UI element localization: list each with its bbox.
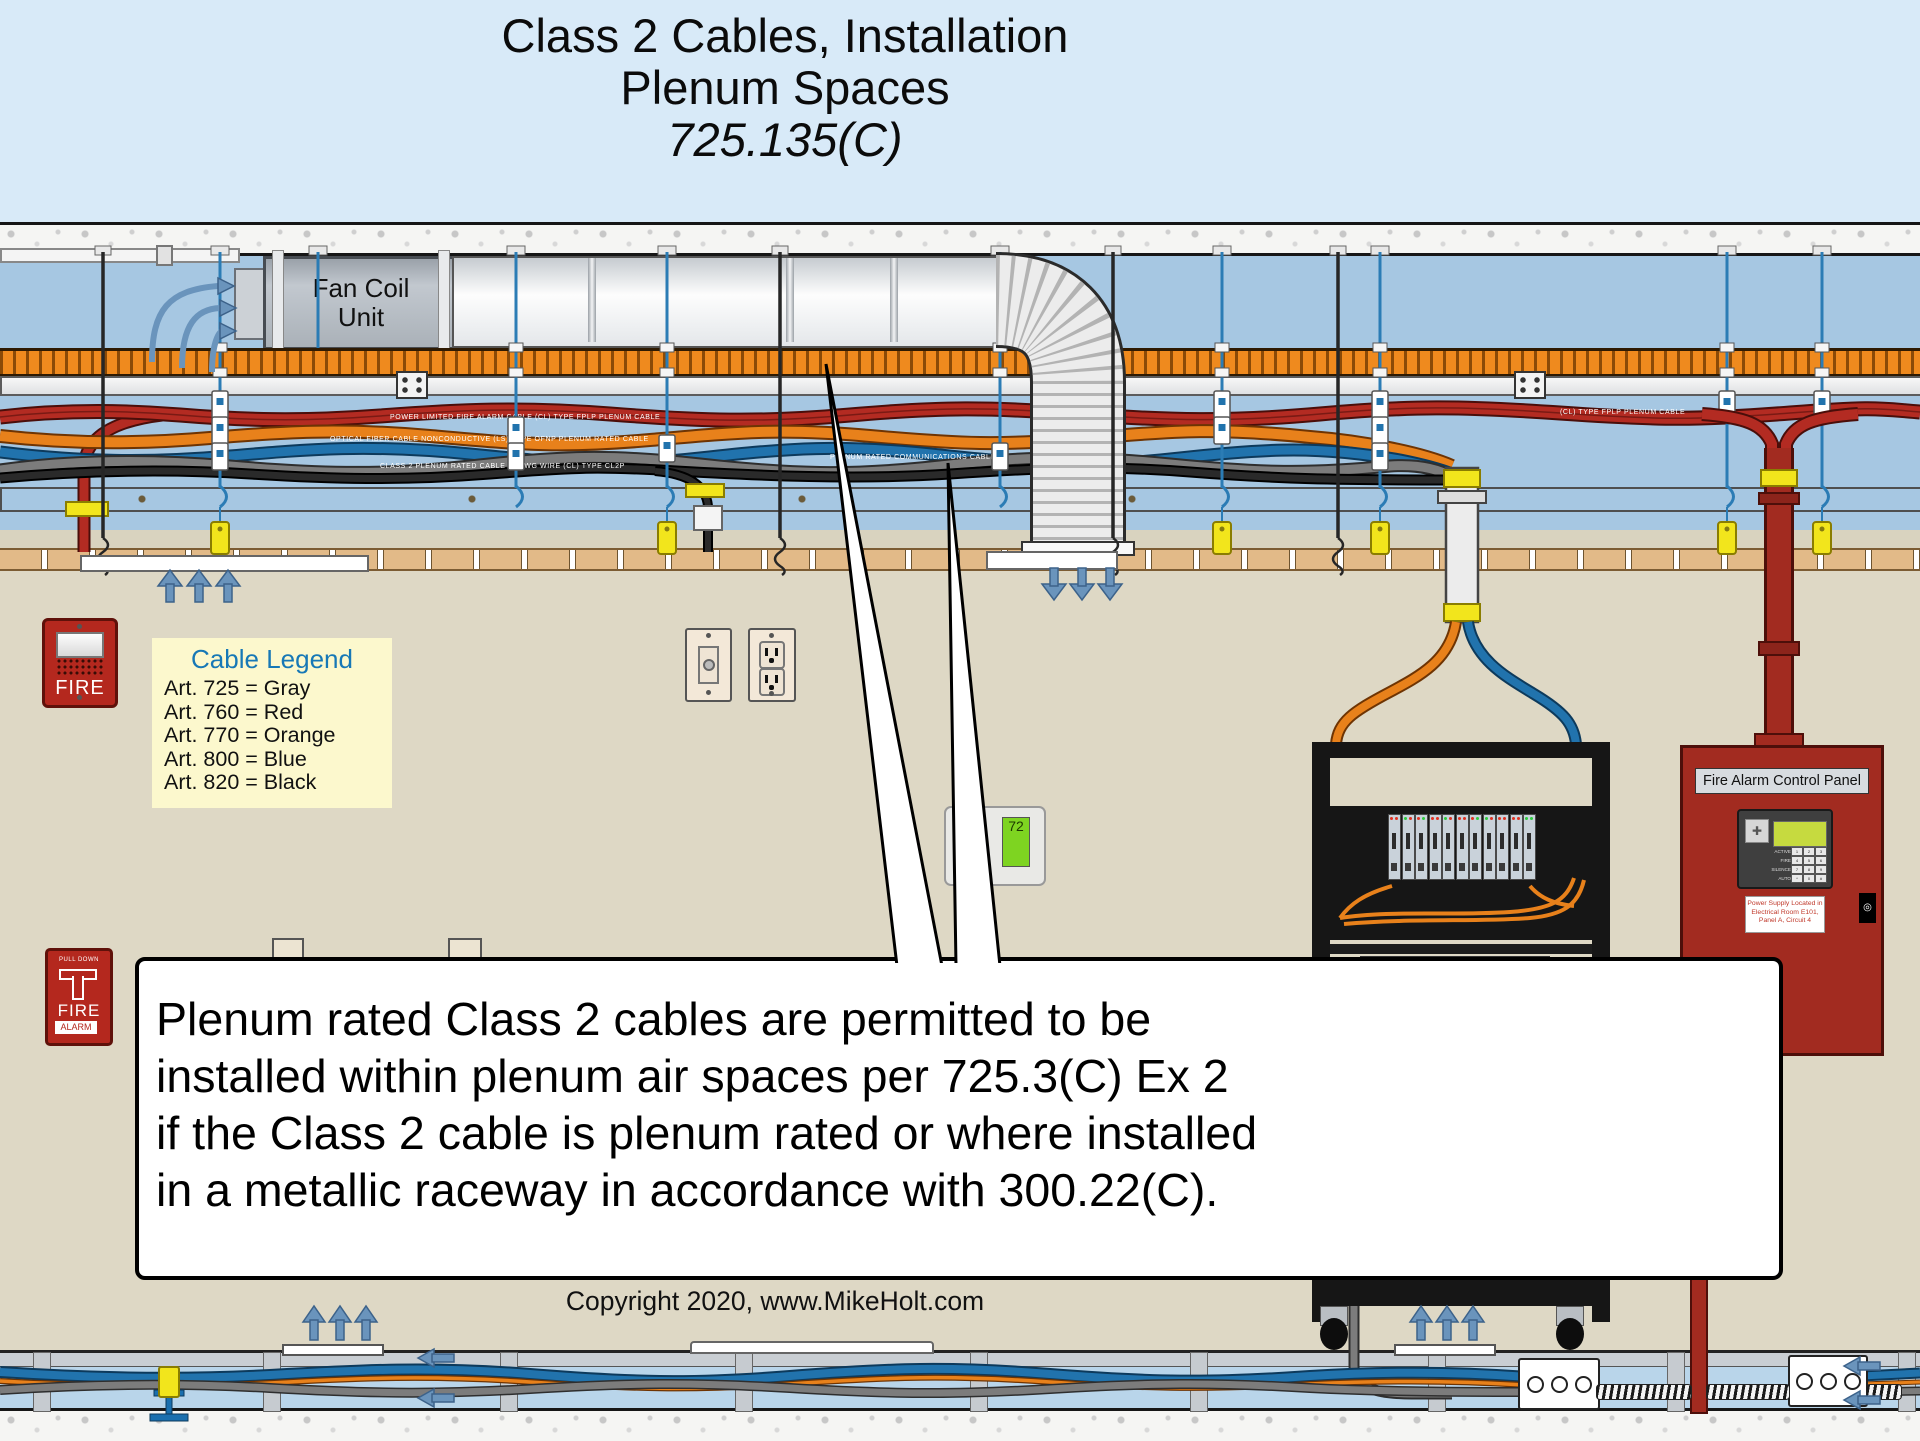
- fan-coil-intake-arrowheads: [218, 278, 236, 339]
- diagram-canvas: Class 2 Cables, Installation Plenum Spac…: [0, 0, 1920, 1441]
- annotation-layer: [0, 0, 1920, 1441]
- airflow-arrows: [158, 568, 1880, 1409]
- callout-pointer-tails: [826, 364, 1006, 972]
- fan-coil-intake-arrows: [152, 286, 222, 372]
